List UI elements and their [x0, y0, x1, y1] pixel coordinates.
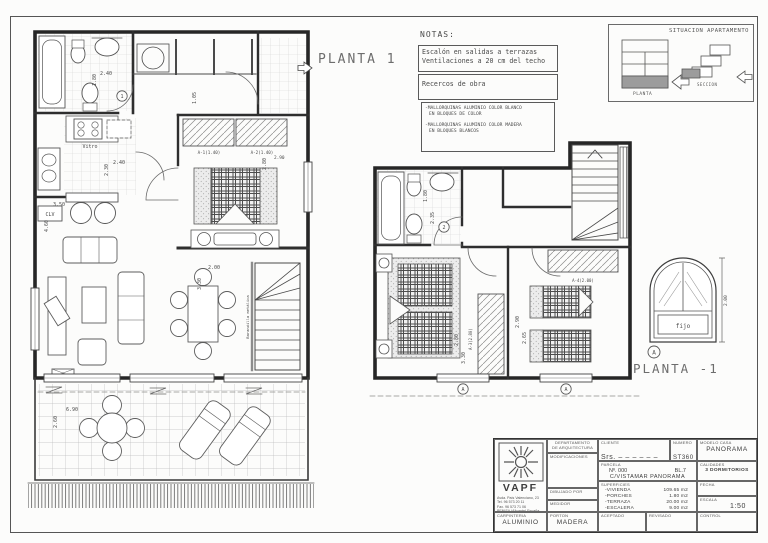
fijo-label: fijo — [676, 323, 691, 330]
living-furniture — [44, 237, 144, 377]
kitchen-door-arc — [136, 152, 164, 180]
brand-name: VAPF — [497, 482, 544, 494]
dining-table-icon — [188, 286, 218, 342]
breakfast-counter — [66, 193, 118, 202]
parcela-num: Nº. 000 — [609, 468, 627, 474]
departamento-line: DE ARQUITECTURA — [550, 446, 595, 451]
wardrobe-label: A-1(1.40) — [198, 150, 221, 155]
superficies-cell: SUPERFICIES -VIVIENDA 109.65 m2 -PORCHES… — [598, 481, 697, 512]
escala-value: 1:50 — [700, 503, 754, 510]
vapf-logo-icon — [498, 442, 544, 482]
stair-closet — [620, 147, 628, 238]
hall-walls — [503, 168, 570, 207]
dim-label: 4.60 — [44, 220, 50, 232]
stairs-plan2 — [572, 145, 628, 240]
dining-set — [171, 269, 236, 360]
terrace-table-icon — [97, 413, 127, 443]
title-block: VAPF Avda. País Valenciano, 23 Tel. 96 5… — [493, 438, 758, 533]
fridge-icon — [107, 120, 131, 138]
situacion-box: SITUACION APARTAMENTO PLANTA SECCION — [608, 24, 754, 102]
terrace-chair-icon — [80, 419, 99, 438]
window-marker: A — [461, 387, 464, 393]
dim-label: 2.30 — [104, 164, 110, 176]
door-marker: 2 — [442, 225, 445, 231]
note-line: Recercos de obra — [422, 80, 554, 88]
chair-icon — [171, 320, 188, 337]
window-marker: A — [564, 387, 567, 393]
dim-label: 2.65 — [522, 332, 528, 344]
double-bed — [191, 168, 279, 248]
terrace-chair-icon — [103, 442, 122, 461]
situacion-planta-label: PLANTA — [633, 92, 652, 97]
armchair-icon — [78, 339, 106, 365]
stairs-plan1 — [252, 263, 300, 370]
dim-label: 2.40 — [100, 71, 112, 77]
parcela-bl: BL.7 — [675, 468, 686, 474]
control-label: CONTROL — [700, 514, 754, 519]
bedroom-right-beds — [530, 286, 593, 362]
note-box-2: Recercos de obra — [418, 74, 558, 100]
bedroom1-door-arc — [146, 168, 178, 200]
sofa-icon — [63, 237, 117, 263]
dim-label: 1.05 — [192, 92, 198, 104]
terrace-chair-icon — [126, 419, 145, 438]
bedroom2-door-arc — [468, 248, 496, 276]
departamento-cell: DEPARTAMENTO DE ARQUITECTURA — [547, 439, 598, 453]
dim-label: 2.40 — [113, 160, 125, 166]
aceptado-cell: ACEPTADO — [598, 512, 646, 532]
note-box-1: Escalón en salidas a terrazas Ventilacio… — [418, 45, 558, 72]
aceptado-label: ACEPTADO — [601, 514, 643, 519]
revisado-label: REVISADO — [649, 514, 694, 519]
bedroom-left-bed — [376, 254, 460, 358]
planta1-title: PLANTA 1 — [318, 52, 397, 67]
escala-cell: ESCALA 1:50 — [697, 496, 757, 512]
calidades-value: 3 DORMITORIOS — [700, 468, 754, 473]
dim-label: 2.90 — [274, 155, 285, 161]
dim-label: 6.90 — [66, 407, 78, 413]
sink-icon — [95, 38, 119, 56]
dim-label: 2.35 — [430, 212, 436, 224]
window-detail: fijo 2.00 A — [648, 258, 729, 358]
dim-label: 2.00 — [723, 295, 729, 306]
dim-label: 3.30 — [197, 278, 203, 290]
clv-label: CLV — [45, 212, 54, 218]
plan1: 2.40 1.80 1 Vitro 2.40 2.30 3.50 4.60 CL… — [28, 32, 314, 508]
porton-value: MADERA — [550, 519, 595, 526]
sink-icon — [430, 173, 454, 191]
dim-label: 3.30 — [461, 352, 467, 364]
stool-icon — [95, 203, 116, 224]
chair-icon — [219, 292, 236, 309]
dim-label: 2.80 — [262, 158, 268, 170]
pillow-icon — [530, 286, 543, 318]
revisado-cell: REVISADO — [646, 512, 697, 532]
note-box-3: -MALLORQUINAS ALUMINIO COLOR BLANCO EN B… — [421, 102, 555, 152]
wardrobe-a4 — [548, 250, 618, 272]
note-line: EN BLOQUES BLANCOS — [425, 129, 551, 135]
stool-icon — [71, 203, 92, 224]
numero-label: NUMERO — [673, 441, 694, 446]
situacion-title: SITUACION APARTAMENTO — [669, 28, 749, 34]
porton-cell: PORTON MADERA — [547, 512, 598, 532]
control-cell: CONTROL — [697, 512, 757, 532]
numero-cell: NUMERO ST360 — [670, 439, 697, 461]
detail-marker: A — [652, 350, 656, 357]
entry-door-arc — [226, 72, 258, 104]
planta-minus1-title: PLANTA -1 — [633, 361, 719, 376]
wardrobe-label: A-2(1.40) — [251, 150, 274, 155]
dibujado-label: DIBUJADO POR — [550, 490, 595, 495]
plan2: A A 2 1.80 2.35 A-3(2.80) A-4(2.00) 2.80… — [370, 143, 640, 396]
pillow-icon — [530, 330, 543, 362]
wardrobes-a1-a2 — [183, 119, 287, 146]
stairs-direction-arrow — [588, 150, 602, 158]
dim-label: 3.50 — [53, 202, 65, 208]
notas-title: NOTAS: — [420, 30, 455, 39]
calidades-cell: CALIDADES 3 DORMITORIOS — [697, 461, 757, 481]
dim-label: 2.80 — [454, 334, 460, 346]
fecha-label: FECHA — [700, 483, 754, 488]
numero-value: ST360 — [673, 455, 694, 461]
medidor-label: MEDIDOR — [550, 502, 595, 507]
situacion-seccion-label: SECCION — [697, 82, 717, 87]
toilet-icon — [406, 214, 422, 234]
stove-icon — [74, 119, 102, 139]
bedroom1-window — [304, 162, 312, 212]
drawing-sheet: 2.40 1.80 1 Vitro 2.40 2.30 3.50 4.60 CL… — [0, 0, 768, 543]
fecha-cell: FECHA 19-02-03 — [697, 481, 757, 496]
dim-label: 2.00 — [208, 265, 220, 271]
railing-label: Barandilla metálica — [245, 295, 250, 338]
dim-label: 1.80 — [423, 190, 429, 202]
modelo-cell: MODELO CASA PANORAMA — [697, 439, 757, 461]
dibujado-cell: DIBUJADO POR JOSE JUAN — [547, 488, 598, 500]
terrace-chair-icon — [103, 396, 122, 415]
medidor-cell: MEDIDOR 000000 — [547, 500, 598, 512]
dim-label: 1.80 — [92, 74, 98, 86]
sofa2-icon — [118, 272, 144, 344]
modificaciones-cell: MODIFICACIONES — [547, 453, 598, 488]
cliente-label: CLIENTE — [601, 441, 667, 446]
wardrobe-label: A-3(2.80) — [468, 328, 473, 350]
carpinteria-cell: CARPINTERIA ALUMINIO — [494, 512, 547, 532]
dim-label: 2.90 — [515, 316, 521, 328]
parcela-cell: PARCELA Nº. 000 BL.7 C/VISTAMAR PANORAMA — [598, 461, 697, 481]
dim-label: 2.60 — [53, 416, 59, 428]
chair-icon — [219, 320, 236, 337]
cliente-value: Srs. ‒ ‒ ‒ ‒ ‒ ‒ — [601, 454, 658, 461]
wardrobe-a3 — [478, 294, 504, 374]
wardrobe-label: A-4(2.00) — [572, 278, 594, 283]
washbasin-icon — [142, 47, 164, 69]
top-closets — [133, 40, 256, 74]
coffee-table-icon — [82, 287, 106, 323]
modificaciones-label: MODIFICACIONES — [550, 455, 595, 460]
chair-icon — [195, 343, 212, 360]
note-line: Ventilaciones a 20 cm del techo — [422, 57, 554, 66]
logo-cell: VAPF Avda. País Valenciano, 23 Tel. 96 5… — [494, 439, 547, 512]
note-line: Escalón en salidas a terrazas — [422, 48, 554, 57]
chair-icon — [171, 292, 188, 309]
door-marker: 1 — [120, 94, 123, 100]
parcela-street: C/VISTAMAR PANORAMA — [601, 474, 694, 480]
pergola-hatch — [28, 484, 314, 508]
modelo-value: PANORAMA — [700, 446, 754, 453]
vitro-label: Vitro — [82, 144, 97, 150]
hall-floor — [258, 38, 306, 113]
cliente-cell: CLIENTE Srs. ‒ ‒ ‒ ‒ ‒ ‒ — [598, 439, 670, 461]
carpinteria-value: ALUMINIO — [497, 519, 544, 526]
